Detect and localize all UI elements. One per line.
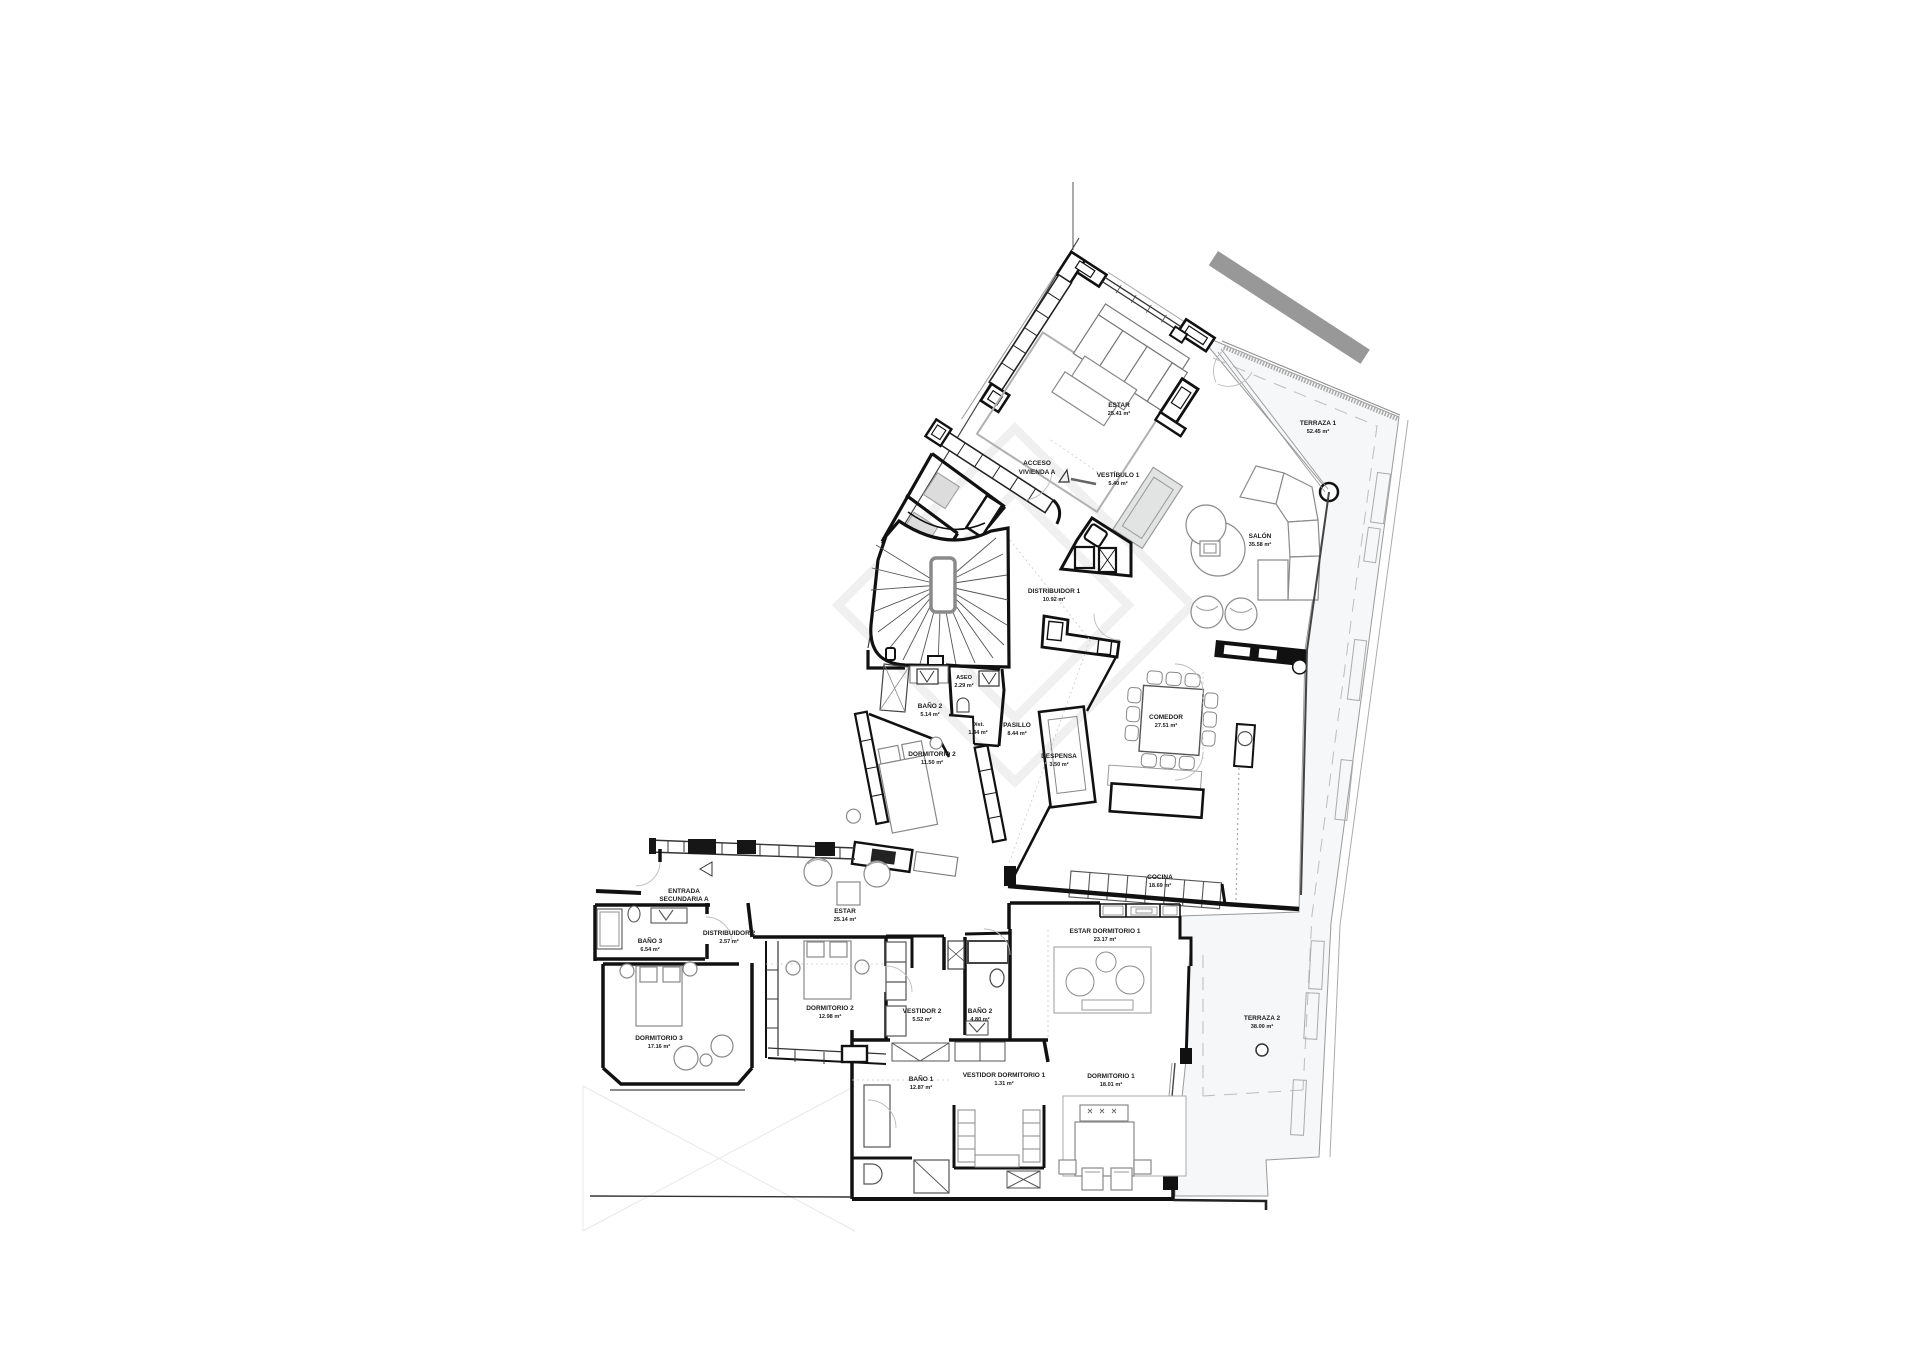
svg-text:BAÑO 3: BAÑO 3 <box>638 936 663 945</box>
svg-text:DORMITORIO 3: DORMITORIO 3 <box>635 1035 683 1042</box>
svg-text:DISTRIBUIDOR 2: DISTRIBUIDOR 2 <box>703 930 756 937</box>
svg-text:DORMITORIO 2: DORMITORIO 2 <box>908 751 956 758</box>
svg-text:11.50 m²: 11.50 m² <box>921 759 943 766</box>
svg-text:TERRAZA 2: TERRAZA 2 <box>1244 1015 1281 1022</box>
svg-text:2.57 m²: 2.57 m² <box>719 938 738 945</box>
svg-text:DORMITORIO 2: DORMITORIO 2 <box>806 1005 854 1012</box>
svg-text:23.17 m²: 23.17 m² <box>1094 936 1117 943</box>
svg-text:1.31 m²: 1.31 m² <box>994 1080 1013 1087</box>
svg-text:18.69 m²: 18.69 m² <box>1149 882 1172 889</box>
svg-text:VESTIDOR DORMITORIO 1: VESTIDOR DORMITORIO 1 <box>963 1072 1046 1079</box>
svg-text:18.01 m²: 18.01 m² <box>1100 1081 1123 1088</box>
svg-text:6.54 m²: 6.54 m² <box>640 946 659 953</box>
svg-text:5.52 m²: 5.52 m² <box>912 1016 931 1023</box>
svg-text:SALÓN: SALÓN <box>1249 531 1272 540</box>
svg-text:DISTRIBUIDOR 1: DISTRIBUIDOR 1 <box>1028 588 1081 595</box>
svg-text:VIVIENDA A: VIVIENDA A <box>1019 469 1056 476</box>
svg-text:DESPENSA: DESPENSA <box>1041 753 1077 760</box>
svg-text:10.92 m²: 10.92 m² <box>1043 596 1066 603</box>
svg-text:PASILLO: PASILLO <box>1003 722 1031 729</box>
svg-text:ESTAR: ESTAR <box>1108 402 1130 409</box>
svg-text:1.44 m²: 1.44 m² <box>968 729 987 736</box>
svg-text:38.00 m²: 38.00 m² <box>1251 1023 1274 1030</box>
svg-text:25.14 m²: 25.14 m² <box>834 916 857 923</box>
svg-text:SECUNDARIA A: SECUNDARIA A <box>659 896 709 903</box>
svg-text:35.58 m²: 35.58 m² <box>1249 541 1272 548</box>
svg-text:ASEO: ASEO <box>956 675 973 681</box>
svg-text:ESTAR: ESTAR <box>834 908 856 915</box>
svg-text:BAÑO 1: BAÑO 1 <box>909 1074 934 1083</box>
svg-text:2.29 m²: 2.29 m² <box>954 682 973 689</box>
svg-text:5.14 m²: 5.14 m² <box>920 711 939 718</box>
svg-text:17.16 m²: 17.16 m² <box>648 1043 671 1050</box>
svg-text:12.87 m²: 12.87 m² <box>910 1084 933 1091</box>
svg-text:Dist.: Dist. <box>972 722 985 728</box>
svg-text:ENTRADA: ENTRADA <box>668 888 700 895</box>
svg-text:5.40 m²: 5.40 m² <box>1108 480 1127 487</box>
svg-text:COMEDOR: COMEDOR <box>1149 714 1183 721</box>
svg-text:52.45 m²: 52.45 m² <box>1307 428 1330 435</box>
svg-text:VESTÍBULO 1: VESTÍBULO 1 <box>1097 470 1140 479</box>
svg-text:12.98 m²: 12.98 m² <box>819 1013 842 1020</box>
svg-text:BAÑO 2: BAÑO 2 <box>918 701 943 710</box>
svg-text:ACCESO: ACCESO <box>1023 460 1051 467</box>
svg-text:BAÑO 2: BAÑO 2 <box>968 1006 993 1015</box>
svg-text:TERRAZA 1: TERRAZA 1 <box>1300 420 1337 427</box>
svg-text:4.80 m²: 4.80 m² <box>970 1016 989 1023</box>
svg-text:25.41 m²: 25.41 m² <box>1108 410 1131 417</box>
svg-text:ESTAR DORMITORIO 1: ESTAR DORMITORIO 1 <box>1070 928 1141 935</box>
svg-text:COCINA: COCINA <box>1147 874 1173 881</box>
svg-text:3.50 m²: 3.50 m² <box>1049 761 1068 768</box>
svg-text:DORMITORIO 1: DORMITORIO 1 <box>1087 1073 1135 1080</box>
svg-text:8.44 m²: 8.44 m² <box>1007 730 1026 737</box>
svg-text:VESTIDOR 2: VESTIDOR 2 <box>903 1008 942 1015</box>
svg-text:27.51 m²: 27.51 m² <box>1155 722 1178 729</box>
